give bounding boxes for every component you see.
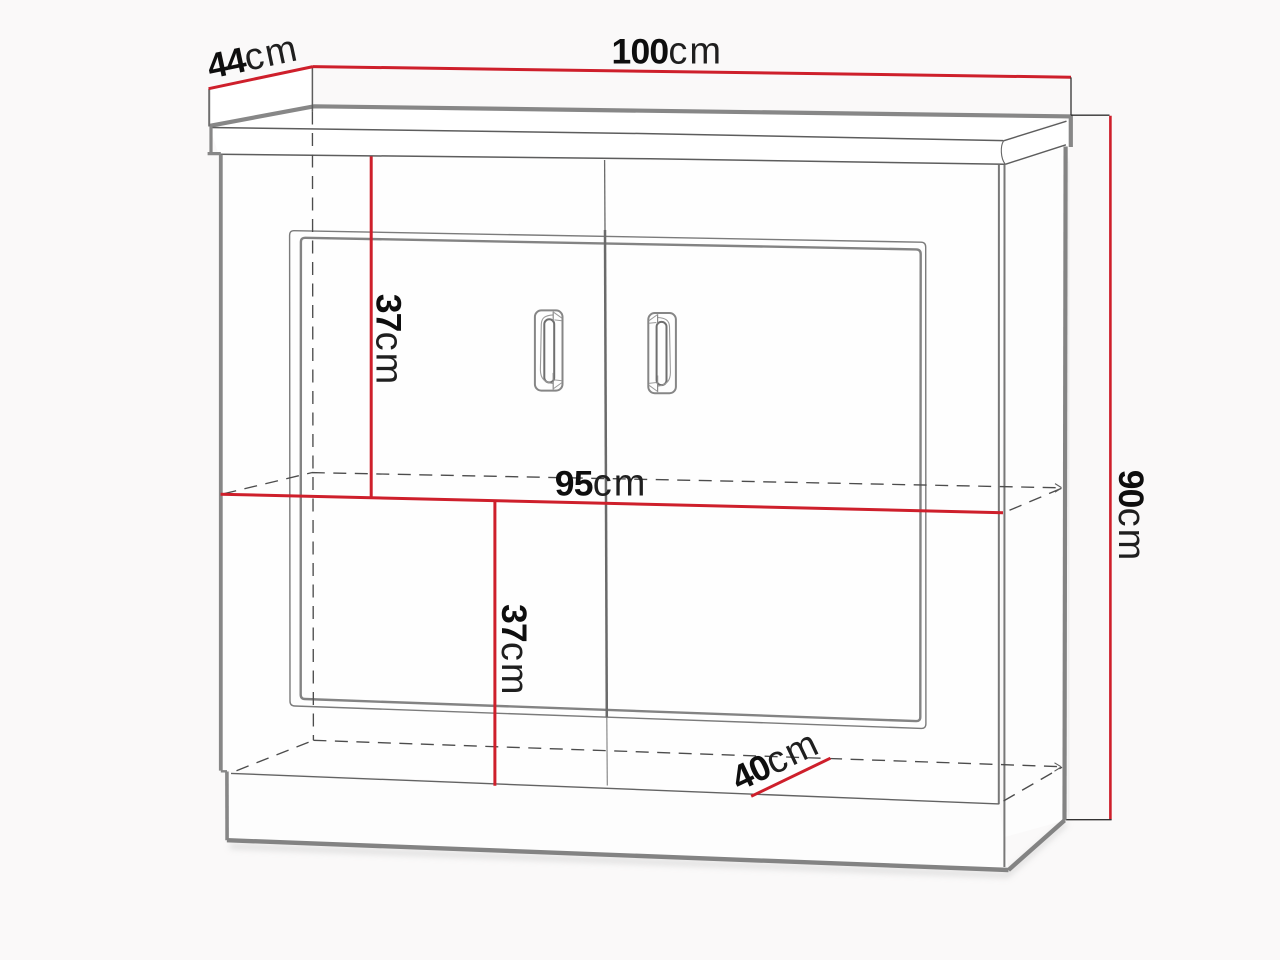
svg-text:100cm: 100cm xyxy=(612,31,724,73)
svg-text:90cm: 90cm xyxy=(1110,470,1152,563)
svg-text:37cm: 37cm xyxy=(493,604,535,697)
svg-text:95cm: 95cm xyxy=(555,462,648,504)
svg-text:37cm: 37cm xyxy=(368,294,410,387)
